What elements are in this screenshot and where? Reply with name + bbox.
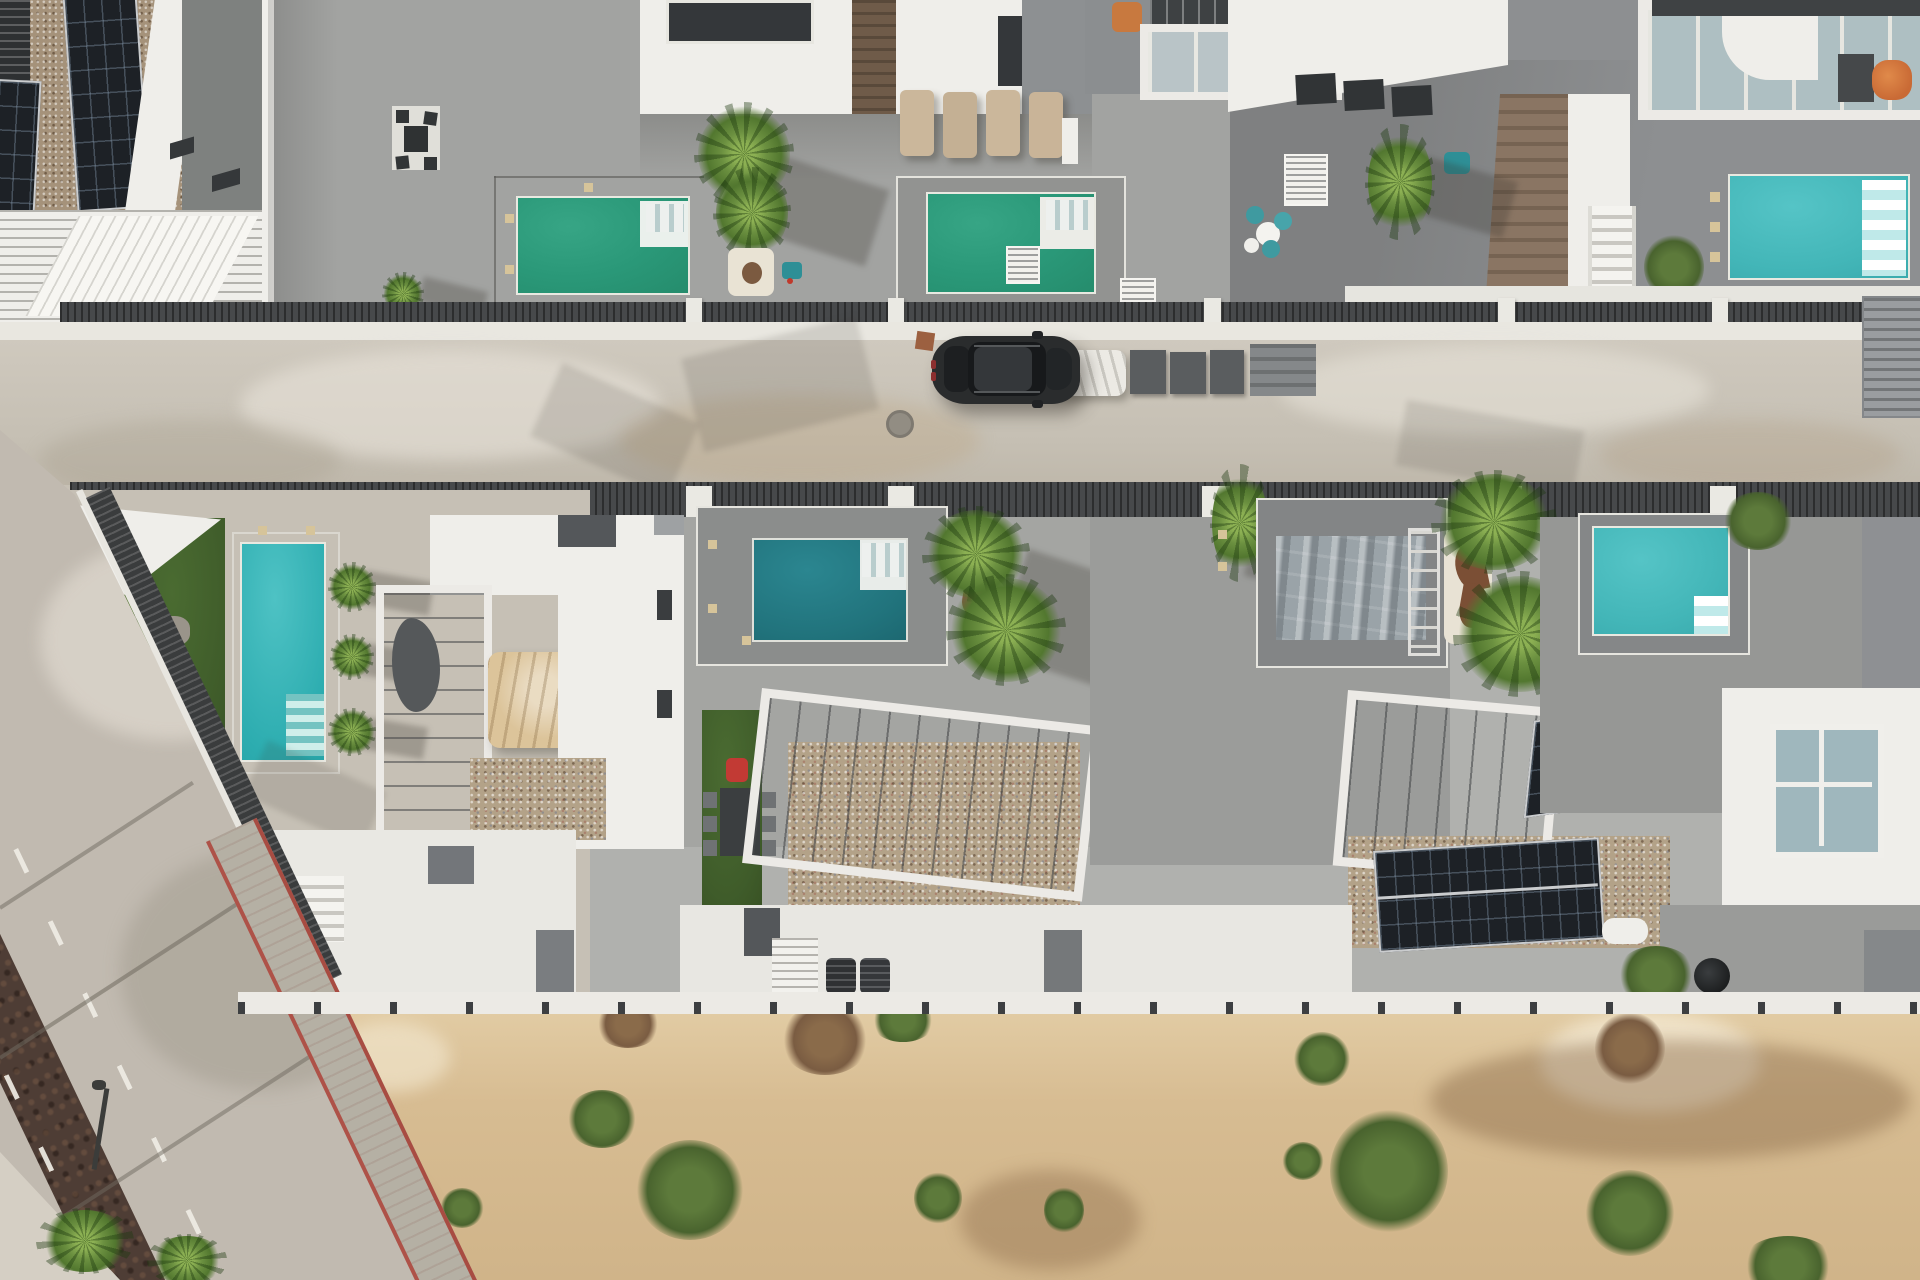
sun-lounger xyxy=(986,90,1020,156)
villa2-window-slot xyxy=(998,16,1022,86)
dining-chair xyxy=(703,840,717,856)
teal-chair xyxy=(1274,212,1292,230)
red-chair xyxy=(726,758,748,782)
bistro-chair xyxy=(396,110,409,123)
villa3-doorway xyxy=(1838,54,1874,102)
deck-light xyxy=(1710,192,1720,202)
pool-cover-tarp xyxy=(1276,536,1426,640)
deck-light xyxy=(306,526,315,535)
glass-fence-line xyxy=(494,176,496,306)
car-rear-window xyxy=(944,346,970,392)
dry-shrub xyxy=(1595,1012,1665,1084)
dry-shrub xyxy=(780,1005,870,1075)
deck-light xyxy=(505,265,514,274)
rear-fence-posts xyxy=(238,1002,1920,1014)
deck-trim-grey xyxy=(428,846,474,884)
fence-post xyxy=(1204,298,1221,325)
gravel-patch xyxy=(558,758,606,840)
lounger-side-table xyxy=(1062,118,1078,164)
pool-robot-teal xyxy=(782,262,802,279)
deck-light xyxy=(1710,222,1720,232)
patio-palm xyxy=(330,710,374,754)
dining-chair xyxy=(703,792,717,808)
topleft-louvre-window xyxy=(0,0,30,84)
farright-grey-wall xyxy=(1862,517,1920,693)
equipment-racks xyxy=(1862,296,1920,418)
deck-light xyxy=(708,604,717,613)
big-palm-top xyxy=(1436,474,1552,570)
villa2-dirt-strip xyxy=(852,0,896,114)
desert-bush xyxy=(1044,1186,1084,1234)
bistro-chair xyxy=(423,111,438,126)
bistro-chair xyxy=(395,155,409,169)
lamp-head xyxy=(92,1080,106,1090)
villa1-wall-shadow xyxy=(268,0,338,306)
parked-suv xyxy=(928,334,1080,408)
bistro-chair xyxy=(424,157,437,170)
villa2-skylight xyxy=(666,0,814,44)
fence-post xyxy=(686,298,702,325)
pool-ladder-rail xyxy=(1408,528,1440,656)
fence-post xyxy=(1712,298,1728,325)
white-chair xyxy=(1244,238,1259,253)
window-mullion xyxy=(1770,782,1872,787)
car-hood xyxy=(1046,348,1072,390)
orange-deck-chair xyxy=(1112,2,1142,32)
pool-robot-light xyxy=(787,278,793,284)
manhole-cover xyxy=(886,410,914,438)
desert-bush-large xyxy=(1330,1110,1448,1232)
desert-bush-large xyxy=(1586,1170,1674,1256)
pool-steps xyxy=(646,204,684,232)
villa3-skylight xyxy=(1343,79,1385,111)
deck-light xyxy=(584,183,593,192)
desert-bush xyxy=(914,1172,962,1224)
desert-bush-large xyxy=(636,1140,744,1240)
pool-corner-step-lines xyxy=(286,694,324,756)
fence-post xyxy=(888,298,904,325)
patio-palm xyxy=(332,636,372,678)
street-bin xyxy=(1170,352,1206,394)
desert-bush xyxy=(566,1090,638,1148)
black-lounger xyxy=(826,958,856,994)
villa3-front-curb xyxy=(1345,286,1920,302)
bbq-grill xyxy=(1694,958,1730,994)
roof-trim-dark xyxy=(558,515,616,547)
deck-light xyxy=(1218,530,1227,539)
fence-post xyxy=(1498,298,1515,325)
slatted-bench xyxy=(1284,154,1328,206)
farright-window xyxy=(1770,724,1884,858)
roof-trim-grey xyxy=(654,515,684,535)
deck-light xyxy=(1218,562,1227,571)
car-roof-rail xyxy=(974,391,1040,393)
back-deck-right xyxy=(1090,905,1352,1005)
sand-dark-band xyxy=(1430,1040,1910,1160)
window-slot xyxy=(657,690,672,718)
street-bin xyxy=(1130,350,1166,394)
car-mirror xyxy=(1032,400,1043,408)
sun-lounger xyxy=(943,92,977,158)
dining-chair xyxy=(703,816,717,832)
bistro-table xyxy=(404,126,428,152)
orange-object xyxy=(1872,60,1912,100)
top-row-fence xyxy=(60,302,1920,323)
black-lounger xyxy=(860,958,890,994)
street-bin xyxy=(1210,350,1244,394)
car-roof-rail xyxy=(974,345,1040,347)
roadside-palm-fronds xyxy=(40,1210,130,1272)
car-taillight xyxy=(931,360,936,369)
desert-bush xyxy=(1282,1142,1324,1180)
deck-light xyxy=(742,636,751,645)
deck-light xyxy=(505,214,514,223)
sun-lounger xyxy=(1029,92,1063,158)
aerial-photo-scene xyxy=(0,0,1920,1280)
palm-cluster-bottom xyxy=(950,578,1062,682)
teal-chair xyxy=(1262,240,1280,258)
white-bench xyxy=(1602,918,1648,944)
patio-palm xyxy=(330,564,374,610)
pool-steps xyxy=(1046,200,1088,230)
deck-light xyxy=(258,526,267,535)
car-roof xyxy=(974,347,1032,391)
pool-steps xyxy=(862,543,904,577)
solar-array-topleft-a xyxy=(0,79,42,217)
sun-lounger xyxy=(900,90,934,156)
palm-tree-edge xyxy=(1368,128,1432,236)
car-taillight xyxy=(931,372,936,381)
shrub-over-gate xyxy=(1722,492,1794,550)
teal-chair xyxy=(1246,206,1264,224)
villa3-skylight xyxy=(1295,73,1337,105)
palm-tree-tall-lower xyxy=(716,170,788,256)
villa3-skylight xyxy=(1391,85,1433,117)
roadside-palm-fronds xyxy=(150,1236,224,1280)
car-mirror xyxy=(1032,331,1043,339)
stairs xyxy=(1588,206,1636,288)
desert-bush xyxy=(1294,1032,1350,1086)
street-stain-warm xyxy=(1600,420,1900,490)
deck-light xyxy=(1710,252,1720,262)
window-slot xyxy=(657,590,672,620)
deck-light xyxy=(708,540,717,549)
villa3-rail xyxy=(1652,0,1920,16)
pool-steps xyxy=(1694,596,1728,634)
entry-steps xyxy=(1250,344,1316,396)
pool-steps-wide xyxy=(1862,180,1906,276)
vent-grille xyxy=(1006,246,1040,284)
palm-pot xyxy=(742,262,762,284)
